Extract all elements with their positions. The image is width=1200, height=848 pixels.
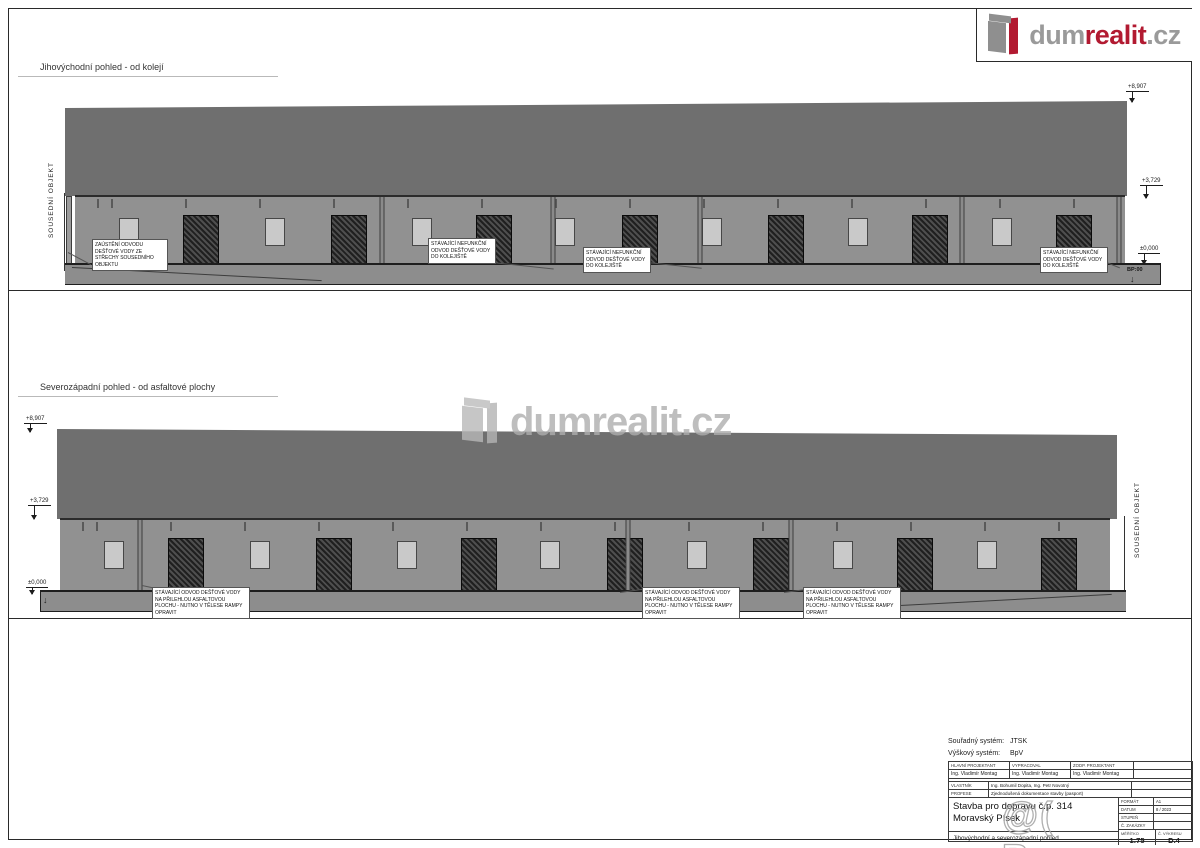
door — [316, 538, 352, 592]
level-value: +3,729 — [28, 498, 51, 506]
arrow-down-icon — [32, 588, 33, 594]
window — [992, 218, 1012, 246]
level-value: ±0,000 — [1138, 246, 1160, 254]
arrow-down-icon — [1146, 186, 1147, 198]
door — [768, 215, 804, 265]
door — [168, 538, 204, 592]
bazos-watermark: @( Bazos.cz — [1002, 795, 1200, 848]
neighbor-object-label: SOUSEDNÍ OBJEKT — [48, 162, 55, 238]
profession-label: PROFESE — [949, 790, 989, 797]
downpipe — [697, 197, 702, 269]
owner-value: Ing. Bohumil Dopita, Ing. Petr Novotný — [989, 782, 1132, 789]
level-value: +8,907 — [24, 416, 47, 424]
door — [897, 538, 933, 592]
neighbor-object-label: SOUSEDNÍ OBJEKT — [1134, 482, 1141, 558]
role-label: VYPRACOVAL — [1010, 762, 1071, 769]
door — [331, 215, 367, 265]
arrow-down-icon — [34, 506, 35, 519]
downpipe — [626, 520, 631, 596]
level-value: ±0,000 — [26, 580, 48, 588]
arrow-down-icon — [30, 424, 31, 432]
annotation-note: STÁVAJÍCÍ NEFUNKČNÍ ODVOD DEŠŤOVÉ VODY D… — [1040, 247, 1108, 273]
facade-wall-elevation2 — [60, 518, 1110, 592]
logo-text-gray: dum — [1029, 20, 1085, 50]
annotation-note: STÁVAJÍCÍ ODVOD DEŠŤOVÉ VODY NA PŘILEHLO… — [152, 587, 250, 619]
window — [848, 218, 868, 246]
downpipe — [379, 197, 384, 269]
door — [753, 538, 789, 592]
window — [250, 541, 270, 569]
roof-elevation1 — [65, 101, 1127, 196]
dumrealit-box-icon — [988, 15, 1020, 55]
window — [397, 541, 417, 569]
door — [1041, 538, 1077, 592]
level-marker: ±0,000 — [1138, 246, 1160, 264]
level-marker: ±0,000 — [26, 580, 48, 594]
role-value: Ing. Vladimír Montag — [1010, 770, 1071, 778]
role-value: Ing. Vladimír Montag — [1071, 770, 1134, 778]
downpipe — [788, 520, 793, 596]
owner-label: VLASTNÍK — [949, 782, 989, 789]
level-marker: +3,729 — [1140, 178, 1163, 198]
level-marker: +8,907 — [24, 416, 47, 432]
level-marker: +3,729 — [28, 498, 51, 519]
role-value: Ing. Vladimír Montag — [949, 770, 1010, 778]
downpipe — [960, 197, 965, 269]
door — [461, 538, 497, 592]
band-divider-line — [8, 290, 1191, 291]
height-system-label: Výškový systém: — [948, 748, 1010, 760]
dumrealit-box-icon — [462, 399, 500, 445]
logo-text-red: realit — [1085, 20, 1147, 50]
dumrealit-logo: dumrealit.cz — [976, 9, 1192, 62]
height-system-value: BpV — [1010, 750, 1023, 757]
window — [702, 218, 722, 246]
window — [265, 218, 285, 246]
window — [540, 541, 560, 569]
window — [977, 541, 997, 569]
role-label: ZODP. PROJEKTANT — [1071, 762, 1134, 769]
dumrealit-watermark: dumrealit.cz — [462, 399, 731, 445]
arrow-down-icon — [1132, 92, 1133, 102]
role-label: HLAVNÍ PROJEKTANT — [949, 762, 1010, 769]
arrow-down-icon: ↓ — [1130, 274, 1135, 284]
annotation-note: STÁVAJÍCÍ NEFUNKČNÍ ODVOD DEŠŤOVÉ VODY D… — [583, 247, 651, 273]
drawing-sheet: dumrealit.cz Jihovýchodní pohled - od ko… — [0, 0, 1200, 848]
arrow-down-icon: ↓ — [43, 595, 48, 605]
window — [555, 218, 575, 246]
window — [104, 541, 124, 569]
logo-text-gray: .cz — [1146, 20, 1181, 50]
window — [687, 541, 707, 569]
neighbor-building-edge — [64, 193, 65, 271]
neighbor-building-edge — [1124, 516, 1125, 596]
ground-level-label: BP:00 — [1127, 267, 1143, 273]
downpipe — [550, 197, 555, 269]
arrow-down-icon — [1144, 254, 1145, 264]
level-value: +3,729 — [1140, 178, 1163, 186]
elevation1-title: Jihovýchodní pohled - od kolejí — [18, 62, 278, 77]
coordinate-systems: Souřadný systém:JTSK Výškový systém:BpV — [948, 736, 1192, 761]
coord-system-label: Souřadný systém: — [948, 736, 1010, 748]
downpipe — [1116, 197, 1121, 269]
door — [183, 215, 219, 265]
annotation-note: STÁVAJÍCÍ NEFUNKČNÍ ODVOD DEŠŤOVÉ VODY D… — [428, 238, 496, 264]
door — [912, 215, 948, 265]
level-value: +8,907 — [1126, 84, 1149, 92]
annotation-note: STÁVAJÍCÍ ODVOD DEŠŤOVÉ VODY NA PŘILEHLO… — [803, 587, 901, 619]
annotation-note: ZAÚSTĚNÍ ODVODU DEŠŤOVÉ VODY ZE STŘECHY … — [92, 239, 168, 271]
watermark-text: dumrealit.cz — [510, 400, 731, 445]
window — [833, 541, 853, 569]
elevation2-title: Severozápadní pohled - od asfaltové ploc… — [18, 382, 278, 397]
coord-system-value: JTSK — [1010, 738, 1027, 745]
downpipe — [66, 196, 72, 270]
annotation-note: STÁVAJÍCÍ ODVOD DEŠŤOVÉ VODY NA PŘILEHLO… — [642, 587, 740, 619]
logo-text: dumrealit.cz — [1029, 20, 1181, 51]
level-marker: +8,907 — [1126, 84, 1149, 102]
